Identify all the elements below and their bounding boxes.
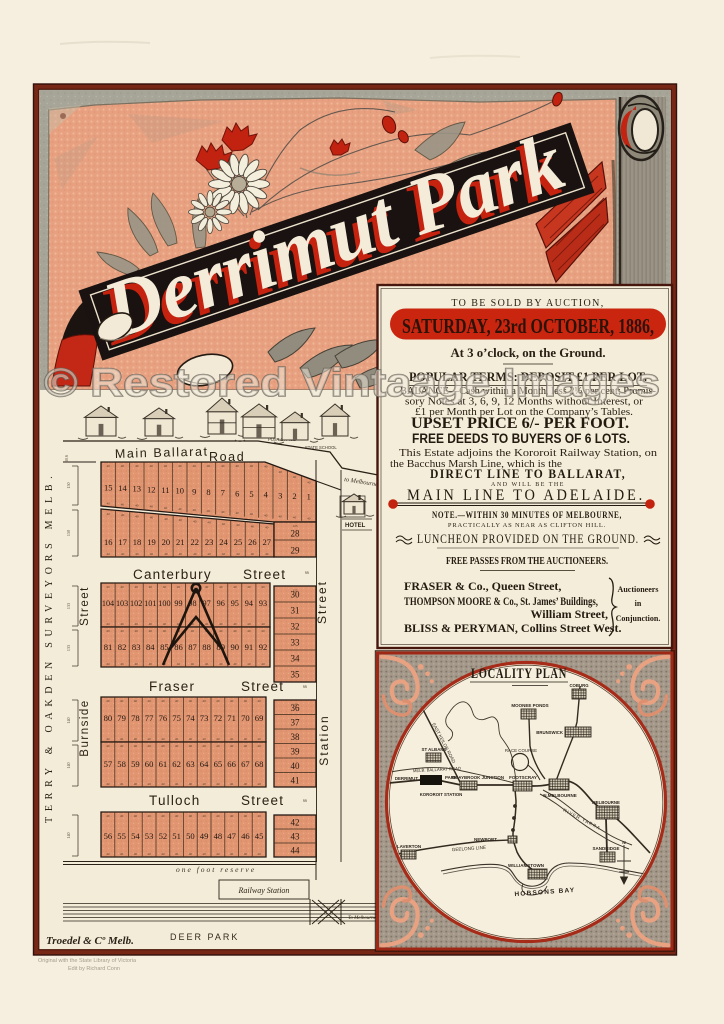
svg-text:40: 40 [121,552,125,556]
svg-text:15: 15 [104,482,113,492]
svg-text:TO BE SOLD BY AUCTION,: TO BE SOLD BY AUCTION, [451,298,604,309]
svg-text:88: 88 [202,642,211,652]
svg-text:51: 51 [172,831,181,841]
svg-text:40: 40 [257,782,261,786]
svg-text:40: 40 [230,814,234,818]
svg-text:one foot reserve: one foot reserve [176,865,256,874]
svg-text:FRASER & Co., Queen Street,: FRASER & Co., Queen Street, [404,579,561,593]
svg-text:40: 40 [189,737,193,741]
svg-text:40: 40 [189,814,193,818]
svg-text:37: 37 [291,717,301,727]
svg-text:40: 40 [247,622,251,626]
svg-text:17: 17 [118,537,127,547]
svg-text:77: 77 [145,713,154,723]
svg-text:40: 40 [175,814,179,818]
svg-text:40: 40 [191,629,195,633]
svg-text:40: 40 [244,737,248,741]
svg-text:49: 49 [200,831,209,841]
svg-text:62: 62 [172,759,181,769]
svg-text:99: 99 [174,599,182,608]
svg-text:83: 83 [132,642,141,652]
svg-text:40: 40 [202,744,206,748]
svg-text:40: 40 [247,662,251,666]
svg-text:TERRY & OAKDEN SURVEYORS MELB.: TERRY & OAKDEN SURVEYORS MELB. [44,473,55,823]
svg-text:41: 41 [291,775,300,785]
svg-text:40: 40 [236,523,240,527]
svg-text:40: 40 [149,662,153,666]
svg-text:Auctioneers: Auctioneers [618,585,659,594]
svg-text:DIRECT LINE TO BALLARAT,: DIRECT LINE TO BALLARAT, [430,466,626,481]
svg-text:40: 40 [161,699,165,703]
svg-text:100: 100 [158,599,170,608]
svg-text:64: 64 [200,759,209,769]
svg-text:NOTE.—WITHIN 30 MINUTES OF MEL: NOTE.—WITHIN 30 MINUTES OF MELBOURNE, [432,511,622,521]
svg-text:40: 40 [219,662,223,666]
svg-text:150: 150 [66,482,71,488]
svg-text:92: 92 [259,642,268,652]
svg-text:21: 21 [176,537,185,547]
svg-text:40: 40 [207,464,211,468]
svg-text:4: 4 [264,490,269,500]
svg-text:40: 40 [189,782,193,786]
svg-text:95: 95 [231,599,239,608]
svg-text:40: 40 [219,622,223,626]
svg-text:22: 22 [190,537,199,547]
svg-text:40: 40 [307,517,311,521]
svg-text:40: 40 [147,814,151,818]
svg-text:40: 40 [244,744,248,748]
svg-text:71: 71 [227,713,236,723]
svg-text:82: 82 [118,642,127,652]
svg-text:40: 40 [179,518,183,522]
svg-text:40: 40 [202,782,206,786]
svg-text:23: 23 [205,537,214,547]
svg-text:11: 11 [161,485,169,495]
svg-text:40: 40 [107,464,111,468]
svg-text:40: 40 [247,585,251,589]
svg-text:40: 40 [107,512,111,516]
svg-text:40: 40 [250,512,254,516]
svg-text:40: 40 [120,744,124,748]
svg-text:40: 40 [202,737,206,741]
svg-text:74: 74 [186,713,195,723]
svg-text:40: 40 [257,744,261,748]
svg-text:66: 66 [303,798,307,803]
svg-text:40: 40 [120,852,124,856]
svg-text:Street: Street [315,580,329,624]
svg-text:54: 54 [131,831,140,841]
svg-text:60: 60 [145,759,154,769]
svg-text:40: 40 [236,552,240,556]
svg-text:40: 40 [205,585,209,589]
svg-text:40: 40 [216,782,220,786]
svg-text:40: 40 [149,622,153,626]
svg-text:40: 40 [120,699,124,703]
svg-text:40: 40 [205,662,209,666]
svg-text:40: 40 [106,622,110,626]
svg-text:40: 40 [202,699,206,703]
svg-text:40: 40 [233,662,237,666]
svg-text:40: 40 [251,552,255,556]
svg-text:Conjunction.: Conjunction. [616,614,661,623]
svg-text:40: 40 [120,662,124,666]
svg-text:10: 10 [176,486,185,496]
svg-text:BLISS & PERYMAN, Collins Stree: BLISS & PERYMAN, Collins Street West. [404,621,621,635]
svg-text:40: 40 [175,782,179,786]
svg-text:40: 40 [247,629,251,633]
svg-text:PRACTICALLY AS NEAR AS CLIFTON: PRACTICALLY AS NEAR AS CLIFTON HILL. [448,522,606,529]
svg-text:56: 56 [104,831,113,841]
svg-text:104: 104 [102,599,114,608]
svg-text:39: 39 [291,746,301,756]
svg-text:LAVERTON: LAVERTON [397,844,421,849]
svg-text:FOOTSCRAY: FOOTSCRAY [509,775,537,780]
svg-text:101: 101 [144,599,156,608]
svg-text:40: 40 [264,513,268,517]
svg-text:63: 63 [186,759,195,769]
svg-text:40: 40 [175,744,179,748]
svg-text:87: 87 [188,642,197,652]
svg-text:85: 85 [160,642,169,652]
svg-text:BRAYBROOK JUNCTION: BRAYBROOK JUNCTION [452,775,504,780]
svg-text:40: 40 [233,585,237,589]
svg-text:29: 29 [291,546,301,556]
svg-text:66: 66 [227,759,236,769]
svg-text:102: 102 [130,599,142,608]
svg-text:Main Ballarat: Main Ballarat [115,444,209,460]
svg-text:40: 40 [149,629,153,633]
svg-text:58: 58 [117,759,126,769]
svg-text:40: 40 [189,744,193,748]
svg-text:13: 13 [133,484,142,494]
svg-text:40: 40 [251,524,255,528]
svg-text:40: 40 [265,552,269,556]
svg-text:40: 40 [121,464,125,468]
svg-text:38: 38 [291,732,301,742]
svg-text:This Estate adjoins the Kororo: This Estate adjoins the Kororoit Railway… [399,448,657,459]
svg-text:40: 40 [193,508,197,512]
svg-text:Railway Station: Railway Station [238,886,290,895]
svg-text:40: 40 [244,814,248,818]
svg-text:40: 40 [135,629,139,633]
svg-text:140: 140 [66,717,71,723]
svg-text:1: 1 [307,492,311,502]
svg-text:40: 40 [106,662,110,666]
svg-text:40: 40 [150,552,154,556]
svg-text:40: 40 [107,552,111,556]
svg-text:94: 94 [245,599,253,608]
svg-text:40: 40 [216,814,220,818]
svg-text:125: 125 [292,589,297,593]
svg-text:40: 40 [216,744,220,748]
svg-text:24: 24 [219,537,228,547]
svg-text:40: 40 [244,852,248,856]
svg-text:59: 59 [131,759,140,769]
svg-text:WILLIAMSTOWN: WILLIAMSTOWN [508,863,544,868]
svg-text:40: 40 [307,481,311,485]
svg-text:HOTEL: HOTEL [345,523,366,529]
svg-text:68: 68 [255,759,264,769]
svg-text:40: 40 [230,852,234,856]
svg-text:40: 40 [106,629,110,633]
svg-text:40: 40 [257,699,261,703]
svg-text:67: 67 [241,759,250,769]
svg-text:46: 46 [241,831,250,841]
svg-text:66: 66 [305,570,309,575]
svg-text:69: 69 [255,713,264,723]
svg-text:40: 40 [135,585,139,589]
svg-text:BRUNSWICK: BRUNSWICK [536,730,564,735]
svg-text:79: 79 [117,713,126,723]
svg-text:40: 40 [120,585,124,589]
svg-text:80: 80 [104,713,113,723]
svg-text:Street: Street [241,679,284,694]
svg-text:40: 40 [106,744,110,748]
svg-text:40: 40 [236,511,240,515]
svg-text:140: 140 [292,703,297,707]
svg-text:40: 40 [106,585,110,589]
svg-text:NEWPORT: NEWPORT [474,837,497,842]
svg-text:40: 40 [135,504,139,508]
svg-text:27: 27 [263,537,272,547]
svg-text:40: 40 [150,516,154,520]
svg-text:40: 40 [221,510,225,514]
svg-text:Canterbury: Canterbury [133,567,212,582]
svg-text:40: 40 [135,552,139,556]
svg-text:Fraser: Fraser [149,679,195,694]
svg-text:72: 72 [214,713,223,723]
svg-text:40: 40 [150,464,154,468]
svg-text:76: 76 [159,713,168,723]
svg-text:40: 40 [257,814,261,818]
svg-text:40: 40 [106,699,110,703]
svg-text:40: 40 [106,737,110,741]
svg-text:N.MELBOURNE: N.MELBOURNE [543,793,577,798]
svg-text:52: 52 [159,831,168,841]
svg-text:40: 40 [161,744,165,748]
svg-text:40: 40 [279,514,283,518]
svg-text:UPSET PRICE 6/- PER FOOT.: UPSET PRICE 6/- PER FOOT. [411,415,629,432]
svg-text:14: 14 [118,483,127,493]
svg-text:90: 90 [231,642,240,652]
svg-text:40: 40 [230,782,234,786]
svg-text:DERRIMUT: DERRIMUT [395,776,418,781]
svg-text:40: 40 [175,699,179,703]
svg-text:40: 40 [261,662,265,666]
svg-text:40: 40 [164,517,168,521]
svg-text:40: 40 [230,737,234,741]
svg-text:40: 40 [107,502,111,506]
svg-text:Edit by Richard Conn: Edit by Richard Conn [68,966,120,972]
svg-text:To Melbourne: To Melbourne [348,916,377,921]
svg-text:31: 31 [291,606,300,616]
svg-text:40: 40 [222,522,226,526]
svg-text:40: 40 [161,814,165,818]
svg-text:40: 40 [219,585,223,589]
svg-text:KOROROIT STATION: KOROROIT STATION [420,792,463,797]
svg-text:40: 40 [161,852,165,856]
svg-text:125: 125 [292,524,297,528]
svg-text:66: 66 [303,684,307,689]
svg-text:MOONEE PONDS: MOONEE PONDS [511,703,548,708]
svg-text:40: 40 [178,464,182,468]
svg-text:12: 12 [147,484,156,494]
svg-text:40: 40 [175,737,179,741]
svg-text:40: 40 [189,852,193,856]
svg-text:40: 40 [233,629,237,633]
svg-text:40: 40 [230,744,234,748]
svg-text:140: 140 [66,832,71,838]
svg-text:25: 25 [234,537,243,547]
svg-text:18: 18 [133,537,142,547]
svg-text:ST ALBANS: ST ALBANS [422,747,447,752]
svg-text:53: 53 [145,831,154,841]
svg-text:40: 40 [121,513,125,517]
svg-text:47: 47 [227,831,236,841]
svg-text:16: 16 [104,537,113,547]
svg-text:40: 40 [147,782,151,786]
svg-text:40: 40 [177,662,181,666]
svg-text:43: 43 [291,832,301,842]
svg-text:61: 61 [159,759,168,769]
svg-text:THOMPSON MOORE & Co., St. Jame: THOMPSON MOORE & Co., St. James’ Buildin… [404,594,598,608]
svg-text:48: 48 [214,831,223,841]
svg-text:40: 40 [216,737,220,741]
svg-text:8: 8 [206,487,210,497]
svg-text:40: 40 [135,622,139,626]
svg-text:30.6: 30.6 [64,455,69,462]
svg-text:26: 26 [248,537,257,547]
svg-text:75: 75 [172,713,181,723]
svg-text:133: 133 [66,645,71,651]
svg-text:55: 55 [117,831,126,841]
svg-text:40: 40 [147,737,151,741]
svg-text:40: 40 [175,852,179,856]
svg-text:40: 40 [279,470,283,474]
svg-text:40: 40 [163,622,167,626]
svg-text:40: 40 [205,622,209,626]
svg-text:Original with the State Librar: Original with the State Library of Victo… [38,958,137,964]
svg-text:28: 28 [291,529,301,539]
svg-text:40: 40 [261,622,265,626]
svg-text:40: 40 [134,737,138,741]
svg-text:Station: Station [317,714,331,765]
svg-text:73: 73 [200,713,209,723]
svg-text:40: 40 [264,465,268,469]
svg-text:Street: Street [79,586,91,626]
svg-text:40: 40 [120,782,124,786]
svg-text:40: 40 [106,782,110,786]
svg-text:40: 40 [222,552,226,556]
svg-text:3: 3 [278,490,282,500]
svg-text:40: 40 [134,814,138,818]
svg-text:91: 91 [245,642,254,652]
svg-text:40: 40 [163,629,167,633]
svg-text:40: 40 [207,552,211,556]
svg-text:40: 40 [265,526,269,530]
svg-text:42: 42 [291,818,300,828]
svg-text:40: 40 [106,814,110,818]
svg-text:40: 40 [193,519,197,523]
svg-text:40: 40 [219,629,223,633]
svg-text:40: 40 [244,699,248,703]
svg-text:34: 34 [291,654,301,664]
svg-text:© Restored Vintaage Images: © Restored Vintaage Images [44,361,660,405]
svg-text:40: 40 [164,464,168,468]
svg-text:40: 40 [193,464,197,468]
svg-text:70: 70 [241,713,250,723]
svg-text:40: 40 [261,585,265,589]
svg-text:40: 40 [193,552,197,556]
svg-text:40: 40 [149,585,153,589]
svg-text:40: 40 [161,782,165,786]
svg-text:40: 40 [216,699,220,703]
svg-text:Street: Street [243,567,286,582]
svg-text:20: 20 [162,537,171,547]
svg-text:40: 40 [257,737,261,741]
svg-text:9: 9 [192,486,196,496]
svg-text:LOCALITY PLAN: LOCALITY PLAN [471,666,567,682]
svg-text:50: 50 [186,831,195,841]
svg-text:FREE PASSES FROM THE AUCTIONEE: FREE PASSES FROM THE AUCTIONEERS. [446,556,608,567]
svg-text:150: 150 [66,530,71,536]
svg-text:7: 7 [221,488,225,498]
svg-text:40: 40 [207,521,211,525]
svg-text:SATURDAY, 23rd OCTOBER, 1886,: SATURDAY, 23rd OCTOBER, 1886, [402,314,654,338]
svg-text:40: 40 [106,852,110,856]
svg-text:Burnside: Burnside [79,699,91,756]
svg-text:SANDRIDGE: SANDRIDGE [592,846,619,851]
svg-text:40: 40 [164,506,168,510]
svg-text:40: 40 [293,475,297,479]
svg-text:MAIN LINE TO ADELAIDE.: MAIN LINE TO ADELAIDE. [407,487,645,504]
svg-text:40: 40 [120,814,124,818]
svg-text:40: 40 [177,585,181,589]
svg-text:40: 40 [120,629,124,633]
svg-text:40: 40 [134,782,138,786]
svg-text:N: N [622,840,626,846]
svg-text:40: 40 [134,744,138,748]
svg-text:FREE DEEDS TO BUYERS OF 6 LOTS: FREE DEEDS TO BUYERS OF 6 LOTS. [412,431,630,446]
svg-text:93: 93 [259,599,267,608]
svg-text:57: 57 [104,759,113,769]
svg-text:40: 40 [189,699,193,703]
svg-text:40: 40 [202,814,206,818]
svg-text:40: 40 [120,622,124,626]
svg-text:40: 40 [233,622,237,626]
svg-text:33: 33 [291,638,301,648]
svg-text:40: 40 [121,503,125,507]
svg-text:40: 40 [163,585,167,589]
svg-text:40: 40 [257,852,261,856]
svg-text:40: 40 [164,552,168,556]
svg-text:96: 96 [217,599,225,608]
svg-text:40: 40 [250,464,254,468]
svg-text:40: 40 [147,852,151,856]
svg-text:Troedel & Cº Melb.: Troedel & Cº Melb. [46,935,134,947]
svg-text:40: 40 [230,699,234,703]
svg-text:40: 40 [134,699,138,703]
svg-text:40: 40 [216,852,220,856]
svg-text:COBURG: COBURG [569,683,589,688]
svg-text:40: 40 [161,737,165,741]
svg-text:19: 19 [147,537,156,547]
svg-text:40: 40 [178,507,182,511]
svg-text:40: 40 [135,464,139,468]
svg-text:40: 40 [221,464,225,468]
svg-text:40: 40 [147,744,151,748]
svg-text:40: 40 [207,509,211,513]
